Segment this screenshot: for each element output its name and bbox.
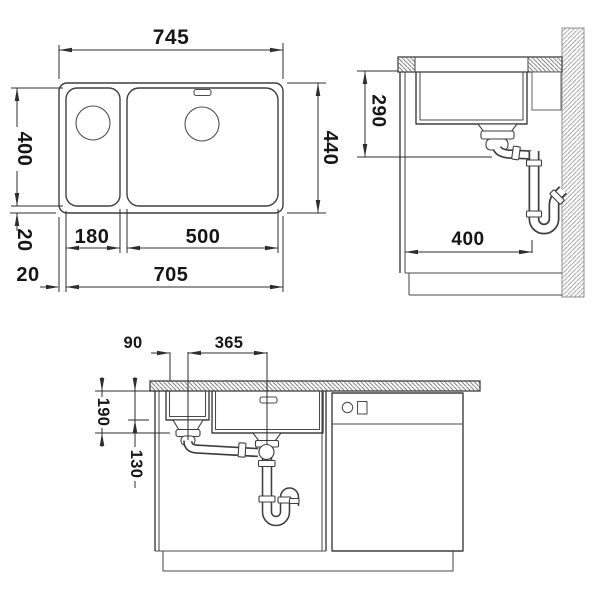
sink-technical-drawing: 745 400 20 180 — [0, 0, 600, 600]
dim-label-130: 130 — [127, 450, 145, 478]
dim-label-20-side: 20 — [16, 264, 39, 286]
dim-label-290: 290 — [368, 94, 389, 127]
dim-label-440: 440 — [319, 131, 341, 166]
dim-label-365: 365 — [215, 334, 243, 352]
wall-support-cleat — [532, 72, 561, 110]
ball-joint — [259, 445, 274, 460]
dim-label-400-side: 400 — [451, 229, 484, 250]
overflow-front — [260, 397, 277, 403]
pipe-coupling — [259, 461, 276, 467]
dim-label-180: 180 — [75, 226, 110, 248]
dim-label-190: 190 — [94, 398, 112, 426]
pipe-coupling — [259, 496, 275, 502]
overflow-slot — [194, 90, 211, 96]
dim-label-400-top: 400 — [13, 132, 35, 167]
worktop-front — [150, 381, 480, 391]
drawing-canvas: 745 400 20 180 — [0, 0, 600, 600]
dim-label-20-front: 20 — [13, 228, 35, 251]
dim-label-705: 705 — [154, 264, 189, 286]
dim-label-500: 500 — [186, 226, 221, 248]
wall-section — [562, 28, 584, 297]
page-background — [0, 0, 600, 600]
pipe-coupling — [527, 160, 542, 166]
dim-label-745: 745 — [153, 26, 190, 49]
pipe-coupling — [527, 211, 542, 217]
dim-label-90: 90 — [124, 334, 143, 352]
pipe-coupling — [290, 499, 300, 504]
dishwasher — [332, 393, 463, 551]
pipe-coupling — [238, 443, 246, 457]
